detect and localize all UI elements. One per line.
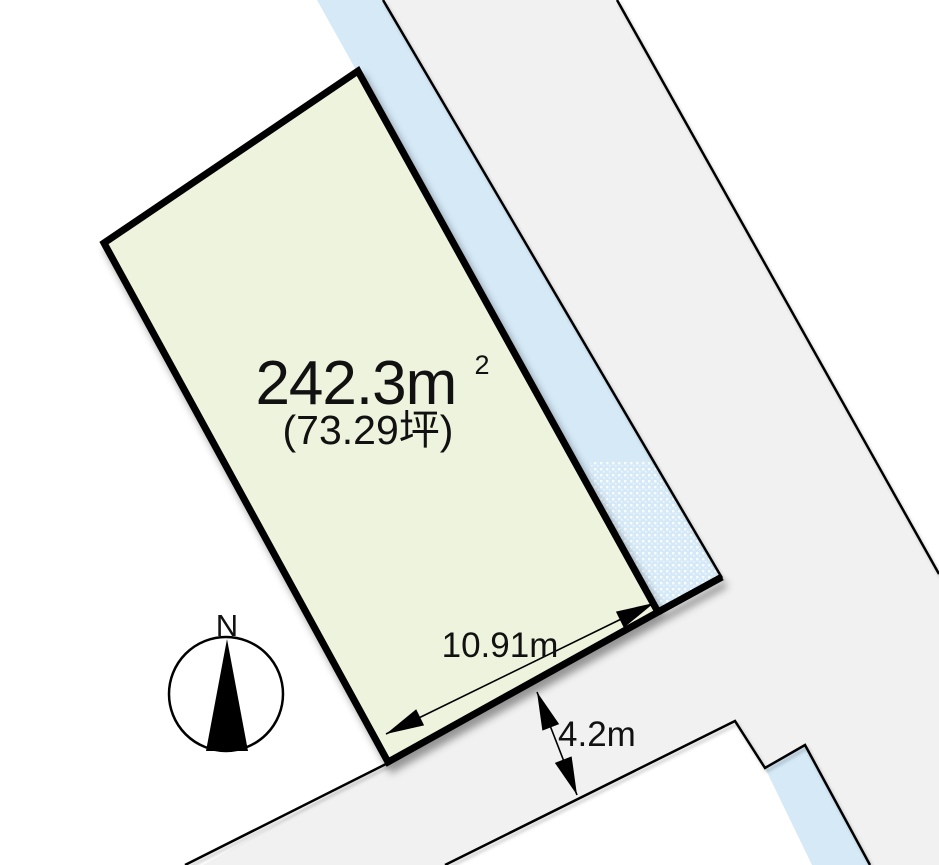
frontage-label: 10.91m: [442, 626, 559, 665]
plot-plan-canvas: 10.91m 4.2m N 242.3m 2 (73.29坪): [0, 0, 939, 865]
area-m2-superscript: 2: [475, 350, 489, 380]
plot-plan-diagram: 10.91m 4.2m N 242.3m 2 (73.29坪): [0, 0, 939, 865]
parcel-area-tsubo-label: (73.29坪): [283, 407, 454, 453]
road-width-label: 4.2m: [558, 715, 636, 754]
